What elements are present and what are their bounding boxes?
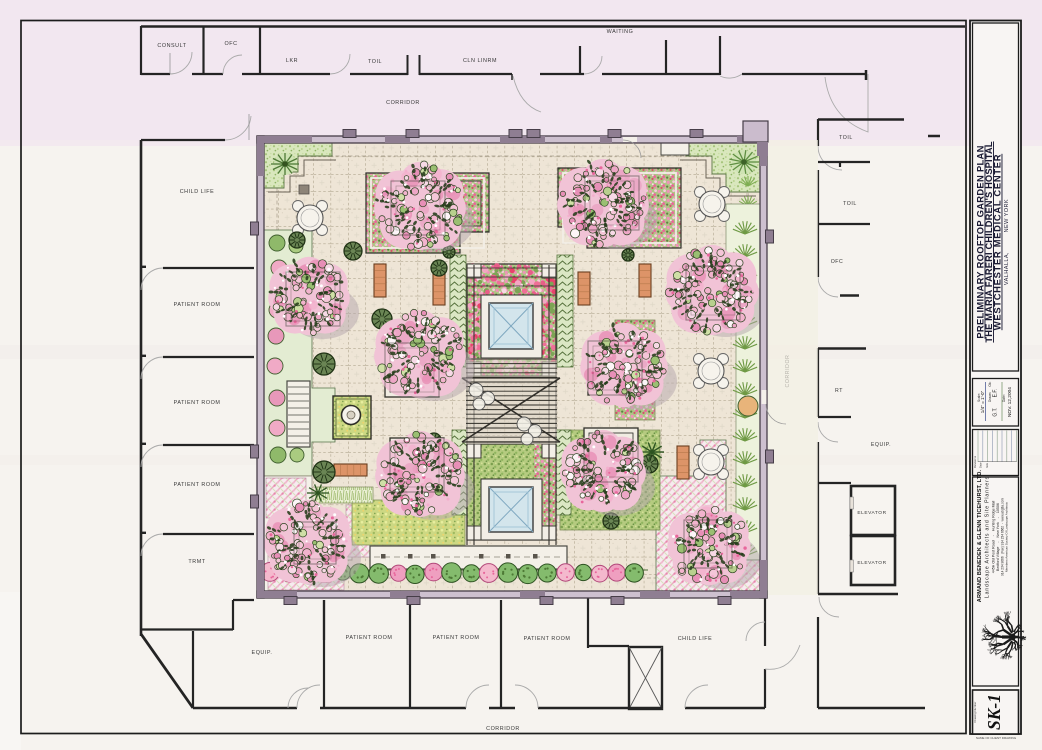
svg-text:PATIENT ROOM: PATIENT ROOM bbox=[433, 635, 480, 641]
svg-text:Landscape Architects and Si: Landscape Architects and Site Planners bbox=[985, 476, 991, 598]
svg-text:PATIENT ROOM: PATIENT ROOM bbox=[174, 302, 221, 308]
svg-text:G.T.: G.T. bbox=[993, 407, 999, 416]
svg-text:CORRIDOR: CORRIDOR bbox=[486, 726, 520, 732]
svg-text:PATIENT ROOM: PATIENT ROOM bbox=[524, 636, 571, 642]
svg-text:WESTCHESTER MEDICAL CENTER: WESTCHESTER MEDICAL CENTER bbox=[992, 154, 1003, 330]
svg-text:SK-1: SK-1 bbox=[984, 694, 1004, 730]
svg-text:Date:: Date: bbox=[1002, 394, 1006, 402]
svg-text:Drawing Number: Drawing Number bbox=[973, 701, 977, 722]
svg-text:Revisions: Revisions bbox=[973, 455, 977, 468]
svg-text:Bedford Village - New Y: Bedford Village - New York - 10506 bbox=[996, 503, 1000, 571]
svg-text:PATIENT ROOM: PATIENT ROOM bbox=[174, 400, 221, 406]
svg-text:NAME OF CLIENT DRAWING: NAME OF CLIENT DRAWING bbox=[976, 736, 1017, 740]
svg-text:1/4" = 1'-0": 1/4" = 1'-0" bbox=[980, 390, 985, 413]
svg-text:LKR: LKR bbox=[286, 58, 298, 64]
svg-text:E.F.: E.F. bbox=[993, 389, 999, 398]
svg-text:NOV. 12,2004: NOV. 12,2004 bbox=[1007, 387, 1013, 417]
svg-text:EQUIP.: EQUIP. bbox=[252, 650, 273, 656]
svg-text:CHILD LIFE: CHILD LIFE bbox=[678, 636, 713, 642]
svg-text:CONSULT: CONSULT bbox=[157, 43, 186, 49]
svg-text:TOIL: TOIL bbox=[843, 201, 857, 207]
svg-text:ELEVATOR: ELEVATOR bbox=[857, 510, 886, 516]
svg-text:EQUIP.: EQUIP. bbox=[871, 442, 891, 448]
svg-text:TOIL: TOIL bbox=[839, 135, 853, 141]
svg-text:PATIENT ROOM: PATIENT ROOM bbox=[346, 635, 393, 641]
svg-text:ARMAND BENEDEK & GLENN TICEHUR: ARMAND BENEDEK & GLENN TICEHURST, LTD. bbox=[977, 469, 983, 602]
svg-text:VALHALLA, NEW YORK: VALHALLA, NEW YORK bbox=[1004, 199, 1010, 285]
svg-text:OFC: OFC bbox=[224, 41, 237, 47]
svg-text:OFC: OFC bbox=[831, 259, 844, 265]
svg-text:ELEVATOR: ELEVATOR bbox=[857, 560, 886, 566]
svg-text:TRMT: TRMT bbox=[188, 559, 205, 565]
svg-text:RT: RT bbox=[835, 388, 843, 394]
svg-text:Members American Society Of La: Members American Society Of Landscape Ar… bbox=[1005, 502, 1009, 572]
svg-text:445H Old Post Road -: 445H Old Post Road - Hunting Ridge Mall bbox=[992, 501, 996, 574]
svg-text:PATIENT ROOM: PATIENT ROOM bbox=[174, 482, 221, 488]
svg-text:Drawn: Ok:: Drawn: Ok: bbox=[988, 382, 992, 402]
svg-text:Date: Date bbox=[979, 462, 983, 468]
svg-text:Item: Item bbox=[985, 463, 989, 468]
svg-text:CHILD LIFE: CHILD LIFE bbox=[180, 189, 215, 195]
svg-text:WAITING: WAITING bbox=[607, 29, 634, 35]
svg-text:CORRIDOR: CORRIDOR bbox=[386, 100, 420, 106]
svg-text:CLN LINRM: CLN LINRM bbox=[463, 58, 497, 64]
svg-text:TOIL: TOIL bbox=[368, 59, 382, 65]
